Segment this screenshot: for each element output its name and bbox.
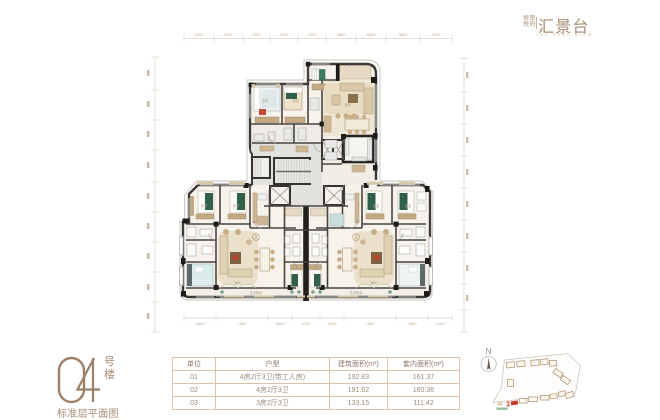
svg-text:卧室: 卧室 [201, 203, 207, 208]
svg-text:生活阳台: 生活阳台 [350, 290, 363, 295]
svg-text:卧室: 卧室 [233, 203, 239, 208]
svg-text:卧室: 卧室 [373, 203, 379, 208]
svg-text:卧室: 卧室 [293, 98, 299, 103]
svg-text:4200: 4200 [195, 32, 205, 37]
svg-text:4800: 4800 [408, 321, 418, 326]
svg-text:3800: 3800 [399, 32, 409, 37]
svg-text:1: 1 [354, 235, 357, 241]
svg-text:3300: 3300 [252, 32, 262, 37]
svg-text:4800: 4800 [196, 321, 206, 326]
svg-text:客厅: 客厅 [345, 102, 352, 107]
svg-text:主卧: 主卧 [262, 98, 269, 103]
svg-text:N: N [486, 347, 492, 356]
svg-text:卧室: 卧室 [405, 203, 411, 208]
svg-text:3800: 3800 [337, 32, 347, 37]
svg-text:4600: 4600 [367, 32, 377, 37]
svg-text:3600: 3600 [328, 321, 338, 326]
svg-text:3300: 3300 [308, 32, 318, 37]
svg-text:4100: 4100 [224, 32, 234, 37]
svg-text:3300: 3300 [280, 32, 290, 37]
svg-text:生活阳台: 生活阳台 [250, 290, 263, 295]
svg-text:4200: 4200 [302, 321, 312, 326]
svg-text:3600: 3600 [276, 321, 286, 326]
svg-text:7900: 7900 [366, 321, 376, 326]
svg-text:7900: 7900 [238, 321, 248, 326]
svg-text:2: 2 [506, 401, 511, 408]
svg-text:4200: 4200 [432, 32, 442, 37]
svg-text:客厅: 客厅 [371, 280, 378, 285]
svg-text:4200: 4200 [436, 321, 446, 326]
svg-text:客厅: 客厅 [235, 280, 242, 285]
svg-text:2: 2 [254, 235, 257, 241]
